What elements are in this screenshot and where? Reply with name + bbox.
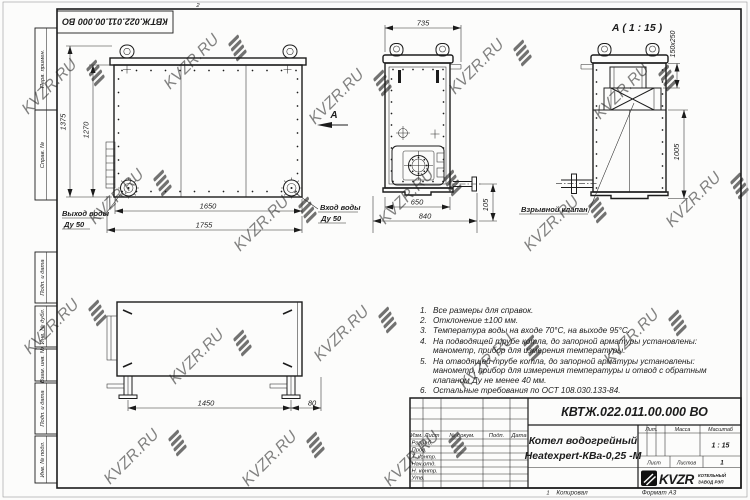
note-number: 4. bbox=[420, 337, 433, 357]
dim-840: 840 bbox=[419, 212, 432, 221]
col-list: Лист bbox=[424, 433, 440, 439]
inlet-label-line1: Вход воды bbox=[320, 203, 361, 212]
notes-block: 1. Все размеры для справок. 2. Отклонени… bbox=[420, 306, 710, 397]
support-leg-left bbox=[107, 376, 137, 399]
row-nach-otd: Нач.отд. bbox=[412, 462, 436, 468]
dim-150x250: 150x250 bbox=[670, 30, 677, 57]
kopiroval-label: Копировал bbox=[556, 490, 588, 497]
field-podp-data-1: Подп. и дата bbox=[40, 259, 46, 296]
field-inv-dubl: Инв. № дубл. bbox=[40, 309, 46, 345]
dim-735: 735 bbox=[417, 19, 430, 28]
product-title-line1: Котел водогрейный bbox=[529, 435, 638, 447]
list-label: Лист bbox=[646, 461, 661, 467]
row-t-kontr: Т. контр. bbox=[412, 455, 437, 461]
support-leg-right bbox=[270, 376, 300, 399]
outlet-label-line2: Ду 50 bbox=[63, 220, 85, 229]
note-item: 2. Отклонение ±100 мм. bbox=[420, 316, 710, 326]
note-text: На подводящей трубе котла, до запорной а… bbox=[433, 337, 710, 357]
dim-1450: 1450 bbox=[198, 399, 216, 408]
dim-1005: 1005 bbox=[672, 143, 681, 161]
inlet-label-line2: Ду 50 bbox=[320, 214, 342, 223]
side-view: А ( 1 : 15 ) Взрывной клапан bbox=[519, 22, 668, 214]
product-title-line2: Heatexpert-КВа-0,25 -М bbox=[525, 450, 642, 462]
dim-650: 650 bbox=[411, 198, 424, 207]
row-utv: Утв. bbox=[411, 476, 425, 482]
note-text: Температура воды на входе 70°С, на выход… bbox=[433, 326, 710, 336]
note-item: 6. Остальные требования по ОСТ 108.030.1… bbox=[420, 386, 710, 396]
drawing-canvas: KVZR.RU 2 bbox=[0, 0, 750, 500]
note-number: 1. bbox=[420, 306, 433, 316]
dim-1375: 1375 bbox=[59, 113, 68, 131]
col-doc: № докум. bbox=[449, 433, 475, 439]
field-podp-data-2: Подп. и дата bbox=[40, 390, 46, 427]
outlet-label-line1: Выход воды bbox=[62, 209, 110, 218]
note-text: Все размеры для справок. bbox=[433, 306, 710, 316]
dim-1755: 1755 bbox=[196, 221, 214, 230]
dim-1270: 1270 bbox=[82, 121, 91, 139]
note-item: 3. Температура воды на входе 70°С, на вы… bbox=[420, 326, 710, 336]
scale-value: 1 : 15 bbox=[712, 443, 730, 450]
note-item: 1. Все размеры для справок. bbox=[420, 306, 710, 316]
massa-label: Масса bbox=[675, 427, 691, 433]
corner-doc-number: КВТЖ.022.011.00.000 ВО bbox=[62, 17, 168, 27]
dim-105: 105 bbox=[481, 198, 490, 211]
masshtab-label: Масштаб bbox=[708, 427, 734, 433]
logo-subtext-1: КОТЕЛЬНЫЙ bbox=[698, 473, 727, 478]
note-text: Остальные требования по ОСТ 108.030.133-… bbox=[433, 386, 710, 396]
fold-mark-top: 2 bbox=[195, 3, 200, 9]
row-n-kontr: Н. контр. bbox=[412, 469, 438, 475]
col-data: Дата bbox=[510, 433, 527, 439]
note-item: 4. На подводящей трубе котла, до запорно… bbox=[420, 337, 710, 357]
watermark-layer bbox=[19, 31, 749, 490]
row-razrab: Разраб. bbox=[412, 441, 433, 447]
note-number: 2. bbox=[420, 316, 433, 326]
drawing-sheet: KVZR.RU 2 bbox=[0, 0, 750, 500]
logo-text: KVZR bbox=[659, 472, 695, 487]
section-arrow-label: А bbox=[329, 110, 337, 121]
dim-1650: 1650 bbox=[200, 202, 218, 211]
listov-value: 1 bbox=[720, 460, 724, 467]
valve-label: Взрывной клапан bbox=[521, 205, 588, 214]
format-label: Формат А3 bbox=[642, 490, 677, 497]
lit-label: Лит. bbox=[644, 427, 657, 433]
note-number: 5. bbox=[420, 357, 433, 386]
field-sprav-no: Справ. № bbox=[40, 142, 46, 168]
doc-number: КВТЖ.022.011.00.000 ВО bbox=[561, 405, 708, 419]
dim-80: 80 bbox=[308, 399, 317, 408]
field-vzam-inv: Взам. инв. № bbox=[40, 347, 46, 383]
note-text: Отклонение ±100 мм. bbox=[433, 316, 710, 326]
fold-mark-bottom: 1 bbox=[546, 491, 549, 497]
logo-subtext-2: ЗАВОД РЭП bbox=[698, 480, 724, 485]
row-prov: Пров. bbox=[412, 448, 427, 454]
col-izm: Изм. bbox=[410, 433, 422, 439]
note-number: 3. bbox=[420, 326, 433, 336]
field-inv-podl: Инв. № подл. bbox=[40, 442, 46, 478]
bottom-view: 1450 80 bbox=[107, 302, 321, 411]
note-item: 5. На отводящей трубе котла, до запорной… bbox=[420, 357, 710, 386]
company-logo: KVZR КОТЕЛЬНЫЙ ЗАВОД РЭП bbox=[641, 471, 727, 488]
side-view-title: А ( 1 : 15 ) bbox=[611, 22, 663, 34]
corner-doc-stamp: КВТЖ.022.011.00.000 ВО bbox=[57, 11, 173, 33]
listov-label: Листов bbox=[676, 461, 697, 467]
note-number: 6. bbox=[420, 386, 433, 396]
col-podp: Подп. bbox=[489, 433, 504, 439]
note-text: На отводящей трубе котла, до запорной ар… bbox=[433, 357, 710, 386]
field-perv-primen: Перв. примен. bbox=[40, 50, 46, 89]
